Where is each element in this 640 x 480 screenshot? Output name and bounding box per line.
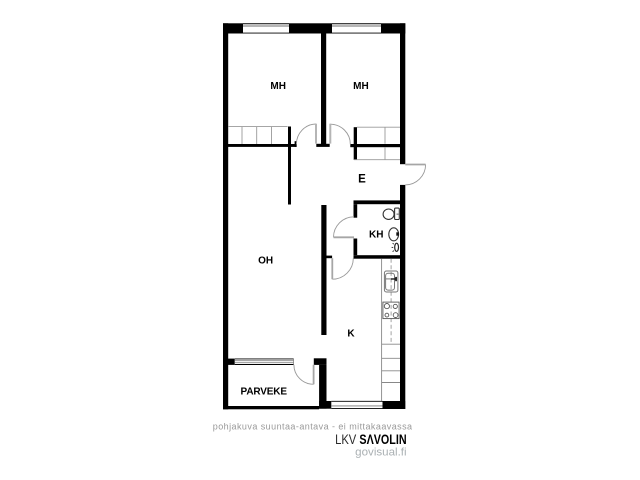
svg-text:E: E xyxy=(358,173,366,185)
svg-text:pohjakuva suuntaa-antava - ei: pohjakuva suuntaa-antava - ei mittakaava… xyxy=(213,422,412,432)
svg-text:K: K xyxy=(347,328,355,339)
svg-text:govisual.fi: govisual.fi xyxy=(355,446,406,458)
svg-text:KH: KH xyxy=(369,230,383,241)
svg-text:LKV: LKV xyxy=(335,432,356,447)
svg-text:SΛVOLIN: SΛVOLIN xyxy=(359,432,406,447)
svg-text:MH: MH xyxy=(353,81,369,92)
svg-text:MH: MH xyxy=(270,81,286,92)
svg-text:PARVEKE: PARVEKE xyxy=(241,387,288,398)
svg-text:OH: OH xyxy=(258,255,273,266)
